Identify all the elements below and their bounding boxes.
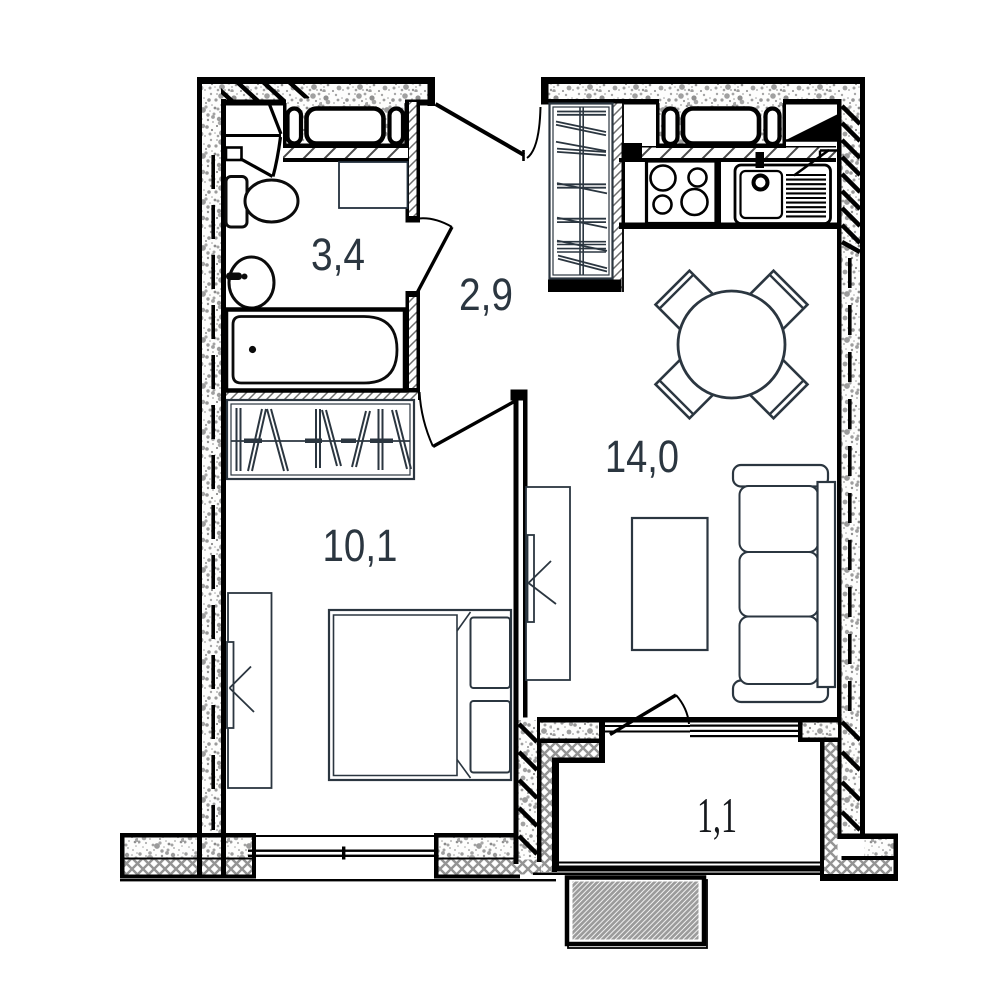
svg-text:14,0: 14,0 bbox=[605, 431, 679, 482]
svg-text:3,4: 3,4 bbox=[311, 229, 365, 280]
svg-text:2,9: 2,9 bbox=[459, 269, 513, 320]
svg-text:10,1: 10,1 bbox=[323, 520, 398, 571]
svg-text:1,1: 1,1 bbox=[697, 787, 737, 843]
